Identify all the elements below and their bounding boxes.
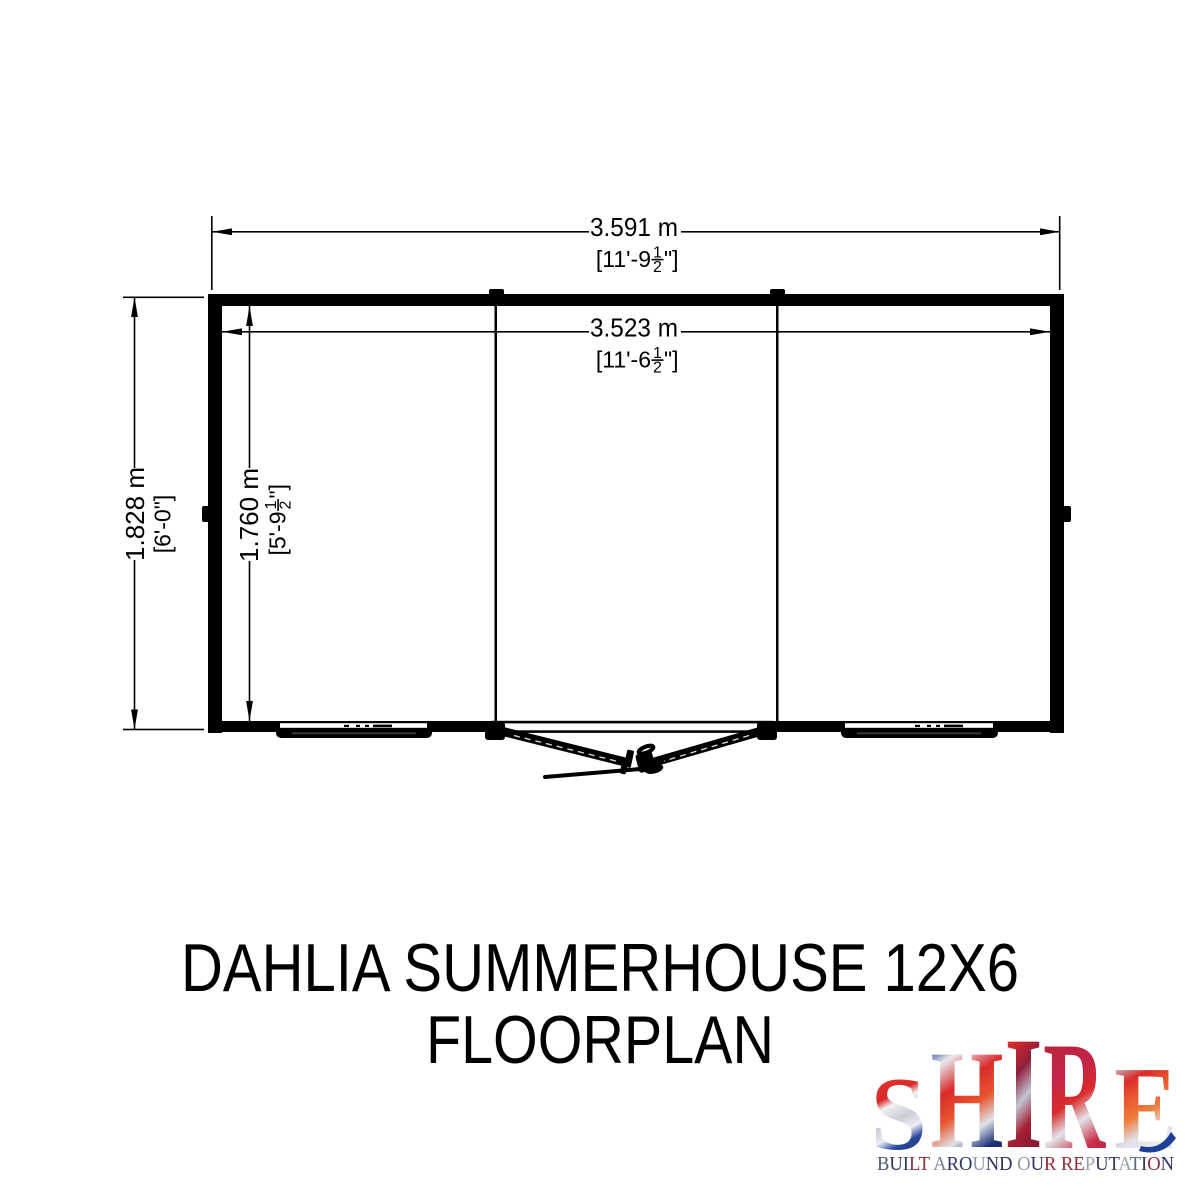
svg-text:3.523 m: 3.523 m: [590, 313, 678, 343]
svg-text:DAHLIA SUMMERHOUSE 12X6: DAHLIA SUMMERHOUSE 12X6: [181, 930, 1019, 1006]
svg-text:2: 2: [278, 500, 295, 509]
svg-text:[11'-6: [11'-6: [596, 347, 651, 373]
svg-text:[11'-9: [11'-9: [596, 246, 651, 272]
svg-text:2: 2: [653, 360, 662, 377]
svg-text:"]: "]: [664, 246, 679, 272]
svg-text:BUILT AROUND OUR REPUTATION: BUILT AROUND OUR REPUTATION: [877, 1153, 1174, 1175]
svg-text:"]: "]: [265, 484, 291, 499]
svg-text:FLOORPLAN: FLOORPLAN: [426, 1002, 774, 1078]
svg-text:2: 2: [653, 259, 662, 276]
svg-text:1.828 m: 1.828 m: [120, 467, 150, 561]
svg-text:[5'-9: [5'-9: [265, 512, 291, 556]
svg-text:1.760 m: 1.760 m: [234, 468, 264, 562]
svg-text:"]: "]: [664, 347, 679, 373]
svg-text:[6'-0"]: [6'-0"]: [150, 495, 176, 554]
svg-text:3.591 m: 3.591 m: [590, 212, 678, 242]
